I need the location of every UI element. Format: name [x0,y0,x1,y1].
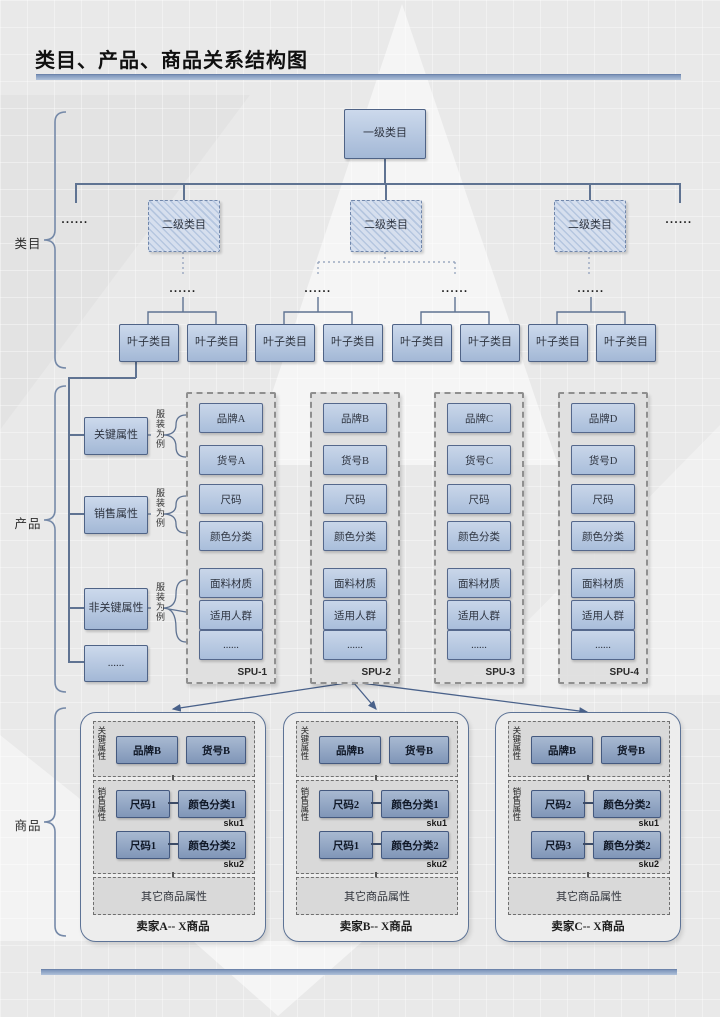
brand-box: 品牌B [116,736,178,764]
section-label-product: 产品 [13,513,43,532]
sku-size-box: 尺码1 [319,831,373,859]
ellipsis: ...... [649,212,709,227]
leaf-category-box: 叶子类目 [119,324,179,362]
tree-line [679,183,681,203]
sku-tag: sku1 [184,818,244,828]
level2-category-box: 二级类目 [148,200,220,252]
spu-attr-box: 适用人群 [447,600,511,630]
sku-color-box: 颜色分类1 [381,790,449,818]
sku-size-box: 尺码2 [531,790,585,818]
spu-attr-box: 货号A [199,445,263,475]
leaf-category-box: 叶子类目 [528,324,588,362]
sku-color-box: 颜色分类1 [178,790,246,818]
page-title: 类目、产品、商品关系结构图 [35,44,308,73]
spu-name: SPU-2 [362,667,391,678]
key-attr-section: 关键属性 品牌B 货号B [508,721,670,777]
sku-tag: sku2 [184,859,244,869]
spu-attr-box: 尺码 [323,484,387,514]
spu-attr-box: 品牌A [199,403,263,433]
brand-box: 品牌B [531,736,593,764]
attr-group-box-key: 关键属性 [84,417,148,455]
spu-attr-box: 品牌B [323,403,387,433]
brace-product [44,386,66,692]
ellipsis: ...... [425,281,485,296]
spu-attr-box: 货号D [571,445,635,475]
key-attr-section: 关键属性 品牌B 货号B [93,721,255,777]
spu-attr-box: 品牌C [447,403,511,433]
attr-group-box-sales: 销售属性 [84,496,148,534]
sales-attr-label: 销售属性 [512,787,521,821]
diagram-canvas: 类目、产品、商品关系结构图 [0,0,720,1017]
seller-card-c: 关键属性 品牌B 货号B 销售属性 尺码2 颜色分类2 sku1 尺码3 颜色分… [495,712,681,942]
sku-color-box: 颜色分类2 [593,831,661,859]
brace-category [44,112,66,368]
ellipsis: ...... [45,212,105,227]
spu-attr-box: 尺码 [199,484,263,514]
rail-stub [68,607,85,609]
key-attr-label: 关键属性 [97,726,106,760]
spu-attr-box: 面料材质 [571,568,635,598]
spu-attr-box: 面料材质 [323,568,387,598]
sku-size-box: 尺码3 [531,831,585,859]
sales-attr-label: 销售属性 [300,787,309,821]
section-label-goods: 商品 [13,815,43,834]
item-no-box: 货号B [601,736,661,764]
sku-link-line [371,843,381,845]
spu-attr-box: 颜色分类 [571,521,635,551]
tree-line [589,183,591,200]
seller-caption: 卖家B-- X商品 [284,918,468,934]
other-attr-section: 其它商品属性 [296,877,458,915]
spu-attr-box: 颜色分类 [199,521,263,551]
spu-attr-box: ...... [447,630,511,660]
seller-card-a: 关键属性 品牌B 货号B 销售属性 尺码1 颜色分类1 sku1 尺码1 颜色分… [80,712,266,942]
attr-group-box-nonkey: 非关键属性 [84,588,148,630]
key-attr-label: 关键属性 [300,726,309,760]
spu-attr-box: 货号B [323,445,387,475]
other-attr-section: 其它商品属性 [93,877,255,915]
spu-column-1: 品牌A 货号A 尺码 颜色分类 面料材质 适用人群 ...... SPU-1 [186,392,276,684]
sku-tag: sku2 [599,859,659,869]
sku-size-box: 尺码1 [116,831,170,859]
ellipsis: ...... [153,281,213,296]
product-rail [68,377,70,663]
seller-caption: 卖家A-- X商品 [81,918,265,934]
spu-attr-box: 品牌D [571,403,635,433]
spu-attr-box: 面料材质 [447,568,511,598]
seller-caption: 卖家C-- X商品 [496,918,680,934]
ellipsis: ...... [561,281,621,296]
sku-link-line [583,843,593,845]
spu-name: SPU-4 [610,667,639,678]
spu-attr-box: 尺码 [571,484,635,514]
sales-attr-section: 销售属性 尺码2 颜色分类2 sku1 尺码3 颜色分类2 sku2 [508,780,670,874]
sku-tag: sku2 [387,859,447,869]
sku-tag: sku1 [599,818,659,828]
leaf-category-box: 叶子类目 [323,324,383,362]
sku-color-box: 颜色分类2 [381,831,449,859]
rail-stub [68,434,85,436]
ellipsis: ...... [288,281,348,296]
sales-attr-section: 销售属性 尺码2 颜色分类1 sku1 尺码1 颜色分类2 sku2 [296,780,458,874]
spu-attr-box: 尺码 [447,484,511,514]
sku-link-line [583,802,593,804]
leaf-category-box: 叶子类目 [187,324,247,362]
spu-name: SPU-3 [486,667,515,678]
spu-column-3: 品牌C 货号C 尺码 颜色分类 面料材质 适用人群 ...... SPU-3 [434,392,524,684]
footer-bar [41,969,677,975]
sku-link-line [168,843,178,845]
spu-attr-box: ...... [199,630,263,660]
leaf-category-box: 叶子类目 [460,324,520,362]
tree-line [384,157,386,184]
spu-column-4: 品牌D 货号D 尺码 颜色分类 面料材质 适用人群 ...... SPU-4 [558,392,648,684]
spu-attr-box: 颜色分类 [447,521,511,551]
spu-column-2: 品牌B 货号B 尺码 颜色分类 面料材质 适用人群 ...... SPU-2 [310,392,400,684]
spu-attr-box: ...... [571,630,635,660]
sku-size-box: 尺码1 [116,790,170,818]
sales-attr-section: 销售属性 尺码1 颜色分类1 sku1 尺码1 颜色分类2 sku2 [93,780,255,874]
key-attr-label: 关键属性 [512,726,521,760]
spu-attr-box: 适用人群 [199,600,263,630]
sku-color-box: 颜色分类2 [593,790,661,818]
brand-box: 品牌B [319,736,381,764]
level2-category-box: 二级类目 [350,200,422,252]
spu-attr-box: ...... [323,630,387,660]
sales-attr-label: 销售属性 [97,787,106,821]
sku-link-line [168,802,178,804]
spu-attr-box: 适用人群 [323,600,387,630]
sku-tag: sku1 [387,818,447,828]
leaf-category-box: 叶子类目 [392,324,452,362]
seller-card-b: 关键属性 品牌B 货号B 销售属性 尺码2 颜色分类1 sku1 尺码1 颜色分… [283,712,469,942]
example-note: 服装为例 [150,582,164,622]
root-category-box: 一级类目 [344,109,426,159]
sku-size-box: 尺码2 [319,790,373,818]
item-no-box: 货号B [186,736,246,764]
leaf-category-box: 叶子类目 [255,324,315,362]
spu-name: SPU-1 [238,667,267,678]
spu-attr-box: 适用人群 [571,600,635,630]
other-attr-section: 其它商品属性 [508,877,670,915]
level2-category-box: 二级类目 [554,200,626,252]
example-note: 服装为例 [150,488,164,528]
dotted-connectors [183,252,589,276]
sku-link-line [371,802,381,804]
title-underline-bar [36,74,681,80]
sku-color-box: 颜色分类2 [178,831,246,859]
spu-to-goods-arrows [173,679,587,712]
key-attr-section: 关键属性 品牌B 货号B [296,721,458,777]
rail-stub [68,513,85,515]
item-no-box: 货号B [389,736,449,764]
spu-attr-box: 颜色分类 [323,521,387,551]
spu-attr-box: 面料材质 [199,568,263,598]
tree-line [75,183,77,203]
tree-line [183,183,185,200]
tree-line [135,360,137,378]
tree-line [385,183,387,200]
leaf-category-box: 叶子类目 [596,324,656,362]
section-label-category: 类目 [13,233,43,252]
rail-stub [68,661,85,663]
leaf-pair-brackets [148,297,625,324]
brace-goods [44,708,66,936]
spu-attr-box: 货号C [447,445,511,475]
tree-line [68,377,136,379]
attr-group-box-more: ...... [84,645,148,682]
example-note: 服装为例 [150,409,164,449]
